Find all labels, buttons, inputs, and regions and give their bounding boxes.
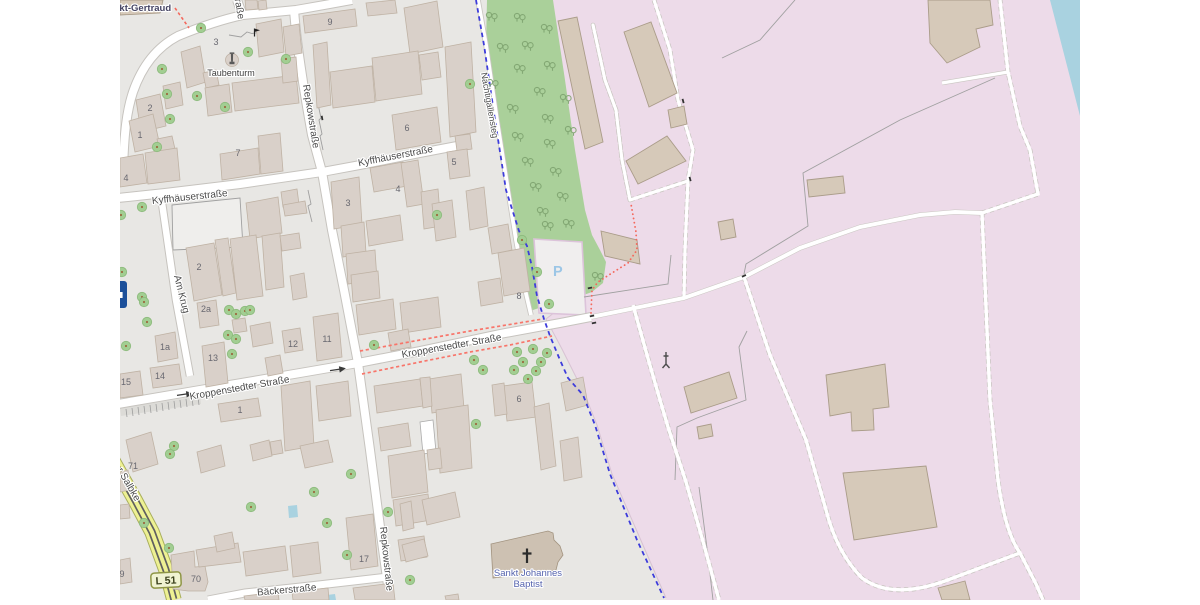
svg-text:13: 13 [208,353,218,363]
svg-text:7: 7 [235,148,240,158]
svg-text:1: 1 [137,130,142,140]
svg-text:15: 15 [121,377,131,387]
svg-text:Sankt Johannes: Sankt Johannes [494,568,562,579]
svg-text:14: 14 [155,371,165,381]
svg-text:11: 11 [322,334,331,344]
svg-text:P: P [553,264,563,280]
svg-text:4: 4 [123,173,128,183]
svg-text:Sankt-Gertraud: Sankt-Gertraud [120,3,171,14]
svg-text:8: 8 [516,291,521,301]
svg-text:2: 2 [147,103,152,113]
svg-text:12: 12 [288,339,298,349]
svg-text:9: 9 [327,17,332,27]
svg-text:Baptist: Baptist [513,579,542,590]
svg-text:3: 3 [345,198,350,208]
svg-text:6: 6 [404,123,409,133]
svg-text:9: 9 [120,569,125,579]
svg-text:L 51: L 51 [155,574,177,587]
svg-text:3: 3 [213,37,218,47]
svg-text:2: 2 [196,262,201,272]
svg-text:17: 17 [359,554,369,564]
svg-text:5: 5 [451,157,456,167]
svg-text:Taubenturm: Taubenturm [207,68,255,78]
svg-text:1: 1 [237,405,242,415]
svg-text:6: 6 [516,394,521,404]
svg-text:2a: 2a [201,304,211,314]
svg-text:4: 4 [395,184,400,194]
svg-text:70: 70 [191,574,201,584]
svg-text:71: 71 [128,461,138,471]
svg-text:1a: 1a [160,342,170,352]
